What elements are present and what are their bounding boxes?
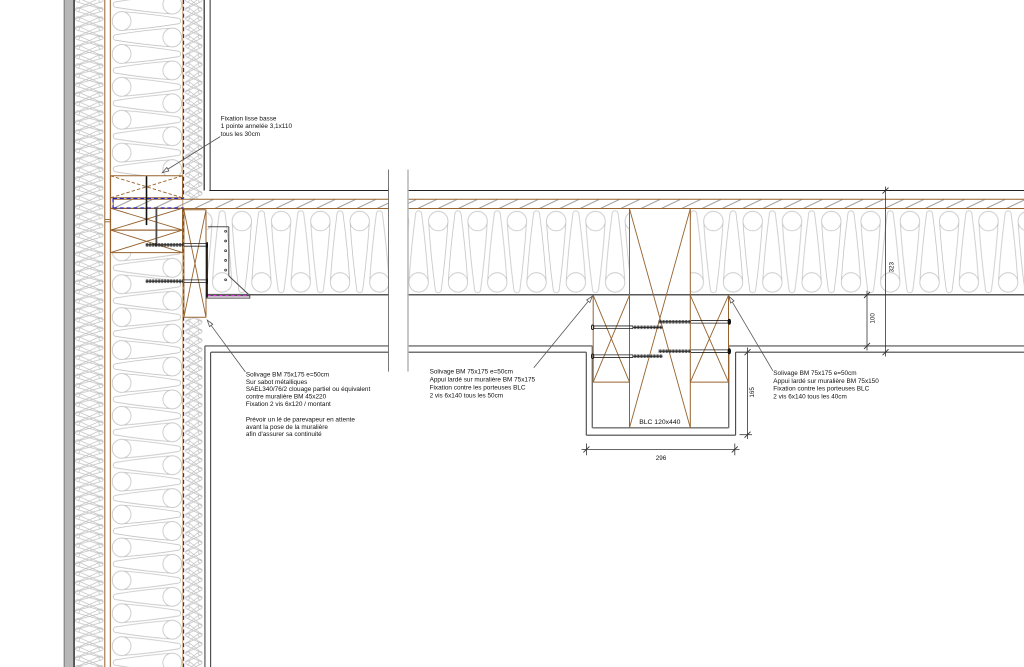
svg-text:afin d'assurer sa continuité: afin d'assurer sa continuité xyxy=(246,431,322,438)
svg-text:296: 296 xyxy=(656,455,667,462)
svg-text:contre muralière BM 45x220: contre muralière BM 45x220 xyxy=(246,394,327,401)
svg-text:1 pointe annelée 3,1x110: 1 pointe annelée 3,1x110 xyxy=(221,123,293,130)
svg-text:Solivage BM 75x175 e=50cm: Solivage BM 75x175 e=50cm xyxy=(246,371,329,378)
svg-text:Appui lardé sur muralière BM 7: Appui lardé sur muralière BM 75x175 xyxy=(430,377,536,384)
svg-text:2 vis 6x140 tous les 50cm: 2 vis 6x140 tous les 50cm xyxy=(430,393,504,400)
svg-text:Appui lardé sur muralière BM 7: Appui lardé sur muralière BM 75x150 xyxy=(773,378,879,385)
svg-text:Sur sabot métalliques: Sur sabot métalliques xyxy=(246,379,307,386)
svg-text:tous les 30cm: tous les 30cm xyxy=(221,131,260,138)
svg-text:323: 323 xyxy=(889,261,896,272)
svg-text:2 vis 6x140 tous les 40cm: 2 vis 6x140 tous les 40cm xyxy=(773,393,847,400)
svg-text:Fixation 2 vis 6x120 / montant: Fixation 2 vis 6x120 / montant xyxy=(246,401,331,408)
svg-text:BLC 120x440: BLC 120x440 xyxy=(639,419,680,426)
svg-text:100: 100 xyxy=(870,313,877,324)
svg-text:Fixation contre les porteuses: Fixation contre les porteuses BLC xyxy=(430,385,526,392)
svg-text:avant la pose de la muralière: avant la pose de la muralière xyxy=(246,424,329,431)
svg-text:Solivage BM 75x175 e=50cm: Solivage BM 75x175 e=50cm xyxy=(773,370,856,377)
svg-text:SAEL340/76/2 clouage partiel o: SAEL340/76/2 clouage partiel ou équivale… xyxy=(246,386,371,393)
svg-text:Fixation lisse basse: Fixation lisse basse xyxy=(221,116,277,123)
svg-text:Solivage BM 75x175 e=50cm: Solivage BM 75x175 e=50cm xyxy=(430,369,513,376)
svg-text:Prévoir un lé de parevapeur en: Prévoir un lé de parevapeur en attente xyxy=(246,416,356,423)
svg-text:165: 165 xyxy=(749,387,756,398)
svg-text:Fixation contre les porteuses: Fixation contre les porteuses BLC xyxy=(773,386,869,393)
